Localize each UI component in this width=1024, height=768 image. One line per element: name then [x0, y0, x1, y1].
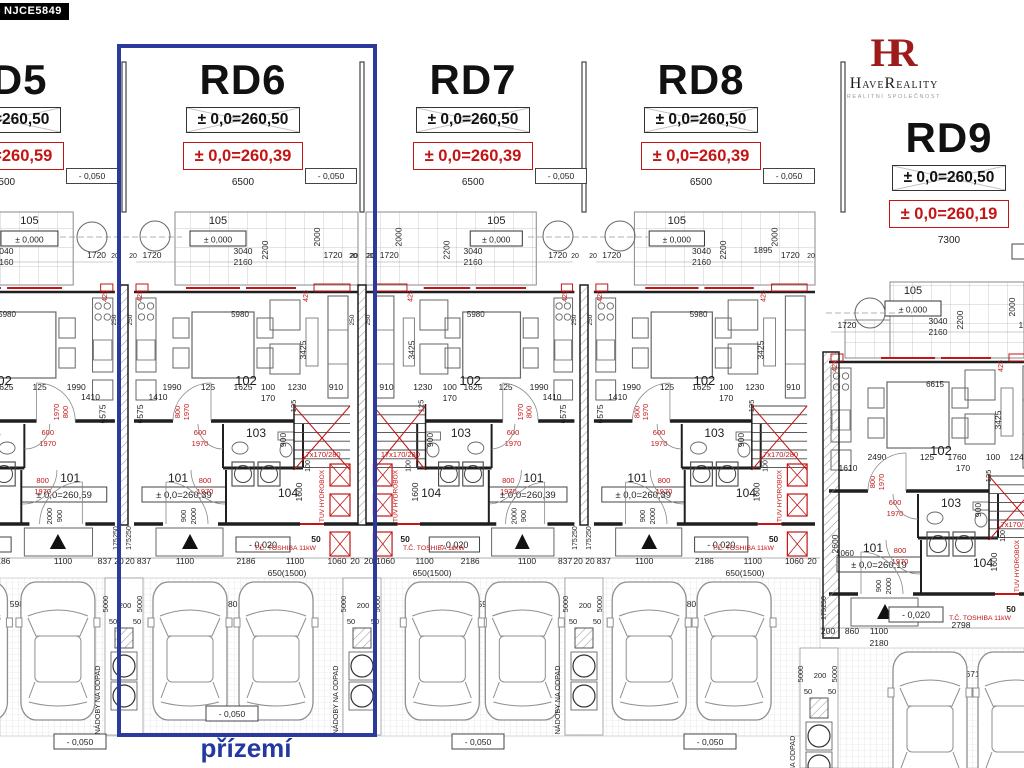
svg-text:5000: 5000 — [101, 596, 110, 613]
elevation-red-box: ± 0,0=260,39 — [641, 142, 761, 170]
svg-text:425: 425 — [562, 290, 569, 302]
svg-text:1970: 1970 — [641, 404, 650, 421]
svg-text:TUV HYDROBOX: TUV HYDROBOX — [776, 469, 783, 522]
svg-text:17x170/280: 17x170/280 — [381, 450, 420, 459]
svg-text:1410: 1410 — [543, 392, 562, 402]
svg-text:50: 50 — [569, 617, 577, 626]
svg-text:2200: 2200 — [955, 310, 965, 329]
svg-text:900: 900 — [874, 580, 883, 593]
svg-text:100: 100 — [986, 452, 1000, 462]
svg-text:50: 50 — [593, 617, 601, 626]
svg-text:200: 200 — [579, 601, 592, 610]
svg-text:105: 105 — [487, 215, 505, 227]
svg-text:1100: 1100 — [635, 556, 654, 566]
svg-text:± 0,000: ± 0,000 — [663, 235, 692, 245]
svg-text:1990: 1990 — [67, 382, 86, 392]
svg-text:600: 600 — [41, 428, 54, 437]
svg-text:100: 100 — [406, 460, 413, 472]
svg-text:2200: 2200 — [718, 240, 728, 259]
svg-text:101: 101 — [523, 471, 543, 485]
unit-header-rd8: RD8 ± 0,0=260,50 ± 0,0=260,39 6500 - 0,0… — [581, 58, 821, 188]
svg-text:6615: 6615 — [926, 380, 944, 389]
svg-text:1970: 1970 — [892, 557, 909, 566]
svg-text:20: 20 — [585, 556, 595, 566]
svg-text:101: 101 — [863, 541, 883, 555]
svg-text:2000: 2000 — [1007, 297, 1017, 316]
svg-text:175: 175 — [572, 538, 579, 550]
svg-text:1720: 1720 — [1019, 320, 1024, 330]
svg-text:3040: 3040 — [692, 246, 711, 256]
unit-title: RD9 — [829, 116, 1024, 160]
svg-text:650(1500): 650(1500) — [413, 568, 452, 578]
svg-text:900: 900 — [55, 510, 64, 523]
elevation-black-box: ± 0,0=260,50 — [416, 107, 530, 133]
svg-text:± 0,000: ± 0,000 — [15, 235, 44, 245]
svg-text:1760: 1760 — [948, 452, 967, 462]
level-box: - 0,050 — [535, 168, 587, 184]
svg-text:5000: 5000 — [561, 596, 570, 613]
svg-text:1100: 1100 — [518, 556, 537, 566]
svg-text:2186: 2186 — [461, 556, 480, 566]
logo-name: HAVEREALITY — [836, 75, 952, 93]
svg-text:50: 50 — [400, 534, 410, 544]
svg-text:T.Č. TOSHIBA 11kW: T.Č. TOSHIBA 11kW — [403, 543, 466, 552]
floor-label: přízemí — [146, 733, 346, 764]
svg-text:1970: 1970 — [505, 439, 522, 448]
unit-header-rd7: RD7 ± 0,0=260,50 ± 0,0=260,39 6500 - 0,0… — [353, 58, 593, 188]
svg-text:837: 837 — [558, 556, 572, 566]
svg-text:- 0,050: - 0,050 — [67, 737, 94, 747]
svg-text:170: 170 — [443, 393, 457, 403]
svg-text:103: 103 — [0, 426, 1, 440]
svg-text:170: 170 — [956, 463, 970, 473]
svg-text:100: 100 — [1000, 530, 1007, 542]
svg-text:50: 50 — [1006, 604, 1016, 614]
svg-text:T.Č. TOSHIBA 11kW: T.Č. TOSHIBA 11kW — [712, 543, 775, 552]
svg-text:1230: 1230 — [413, 382, 432, 392]
svg-text:3040: 3040 — [464, 246, 483, 256]
svg-text:20: 20 — [573, 556, 583, 566]
svg-text:1060: 1060 — [785, 556, 804, 566]
svg-text:800: 800 — [525, 406, 534, 419]
level-box: - 0,050 — [763, 168, 815, 184]
svg-text:2798: 2798 — [952, 620, 971, 630]
svg-text:2000: 2000 — [769, 227, 779, 246]
svg-text:3040: 3040 — [0, 246, 14, 256]
svg-text:1410: 1410 — [81, 392, 100, 402]
svg-text:837: 837 — [597, 556, 611, 566]
svg-text:100: 100 — [719, 382, 733, 392]
svg-text:650(1500): 650(1500) — [726, 568, 765, 578]
svg-text:200: 200 — [814, 671, 827, 680]
elevation-red-box: ± 0,0=260,39 — [413, 142, 533, 170]
svg-text:101: 101 — [627, 471, 647, 485]
svg-text:900: 900 — [519, 510, 528, 523]
svg-text:1100: 1100 — [744, 556, 763, 566]
svg-text:- 0,050: - 0,050 — [697, 737, 724, 747]
svg-text:NÁDOBY NA ODPAD: NÁDOBY NA ODPAD — [93, 666, 102, 735]
svg-text:1970: 1970 — [887, 509, 904, 518]
svg-text:5000: 5000 — [796, 666, 805, 683]
svg-text:3425: 3425 — [993, 410, 1003, 429]
svg-text:TUV HYDROBOX: TUV HYDROBOX — [393, 469, 400, 522]
svg-text:17x170/280: 17x170/280 — [996, 520, 1024, 529]
unit-title: RD5 — [0, 58, 124, 102]
logo-monogram-icon: HR — [836, 33, 952, 73]
svg-text:20: 20 — [571, 253, 579, 260]
svg-text:101: 101 — [60, 471, 80, 485]
drawing-id-badge: NJCE5849 — [0, 3, 69, 20]
svg-text:- 0,020: - 0,020 — [902, 610, 930, 620]
svg-text:5980: 5980 — [0, 310, 17, 319]
svg-text:900: 900 — [425, 433, 435, 447]
logo-tagline: REALITNÍ SPOLEČNOST — [836, 94, 952, 100]
svg-text:250: 250 — [587, 314, 594, 325]
svg-text:103: 103 — [704, 426, 724, 440]
svg-text:425: 425 — [408, 290, 415, 302]
svg-text:5980: 5980 — [467, 310, 485, 319]
svg-text:100: 100 — [763, 460, 770, 472]
svg-text:2200: 2200 — [442, 240, 452, 259]
svg-text:425: 425 — [998, 360, 1005, 372]
svg-text:2186: 2186 — [695, 556, 714, 566]
svg-text:2000: 2000 — [393, 227, 403, 246]
svg-text:1895: 1895 — [754, 245, 773, 255]
svg-text:5980: 5980 — [690, 310, 708, 319]
svg-text:50: 50 — [769, 534, 779, 544]
elevation-red-box: ± 0,0=260,19 — [889, 200, 1009, 228]
svg-text:1240: 1240 — [1010, 452, 1024, 462]
svg-text:2000: 2000 — [45, 508, 54, 525]
svg-text:1610: 1610 — [839, 463, 858, 473]
unit-header-rd9: RD9 ± 0,0=260,50 ± 0,0=260,19 7300 — [829, 116, 1024, 246]
svg-text:2000: 2000 — [510, 508, 519, 525]
floorplan-page: 105± 0,000172030402160172020220020004254… — [0, 0, 1024, 768]
svg-text:1625: 1625 — [0, 382, 14, 392]
svg-text:1100: 1100 — [870, 626, 889, 636]
svg-text:2186: 2186 — [0, 556, 11, 566]
svg-text:50: 50 — [804, 687, 812, 696]
unit-title: RD8 — [581, 58, 821, 102]
svg-text:175: 175 — [586, 538, 593, 550]
svg-text:105: 105 — [20, 215, 38, 227]
svg-text:NÁDOBA NA ODPAD: NÁDOBA NA ODPAD — [788, 736, 797, 768]
svg-text:1720: 1720 — [380, 250, 399, 260]
elevation-black-box: ± 0,0=260,50 — [644, 107, 758, 133]
svg-text:2180: 2180 — [870, 638, 889, 648]
svg-text:800: 800 — [894, 546, 907, 555]
svg-text:1230: 1230 — [745, 382, 764, 392]
svg-text:2000: 2000 — [648, 508, 657, 525]
svg-text:900: 900 — [736, 433, 746, 447]
svg-text:1600: 1600 — [752, 482, 762, 501]
svg-text:250: 250 — [586, 526, 593, 538]
svg-text:1720: 1720 — [781, 250, 800, 260]
svg-text:3040: 3040 — [929, 316, 948, 326]
svg-text:425: 425 — [597, 290, 604, 302]
svg-text:20: 20 — [807, 556, 817, 566]
svg-text:1600: 1600 — [410, 482, 420, 501]
svg-text:105: 105 — [904, 285, 922, 297]
elevation-black-box: ± 0,0=260,50 — [892, 165, 1006, 191]
svg-text:105: 105 — [668, 215, 686, 227]
rd6-highlight-frame — [117, 44, 377, 737]
svg-text:1625: 1625 — [464, 382, 483, 392]
svg-text:250: 250 — [571, 314, 578, 325]
svg-text:1410: 1410 — [608, 392, 627, 402]
svg-text:104: 104 — [421, 486, 441, 500]
svg-text:NÁDOBY NA ODPAD: NÁDOBY NA ODPAD — [553, 666, 562, 735]
svg-text:1720: 1720 — [548, 250, 567, 260]
svg-text:800: 800 — [36, 476, 49, 485]
svg-text:5000: 5000 — [830, 666, 839, 683]
svg-text:50: 50 — [828, 687, 836, 696]
svg-text:250: 250 — [572, 526, 579, 538]
svg-text:2000: 2000 — [884, 578, 893, 595]
svg-text:100: 100 — [443, 382, 457, 392]
svg-text:1990: 1990 — [530, 382, 549, 392]
svg-text:425: 425 — [102, 290, 109, 302]
svg-text:1970: 1970 — [516, 404, 525, 421]
svg-text:1625: 1625 — [692, 382, 711, 392]
svg-text:910: 910 — [379, 382, 393, 392]
svg-text:600: 600 — [653, 428, 666, 437]
svg-text:600: 600 — [889, 498, 902, 507]
svg-text:± 0,000: ± 0,000 — [482, 235, 511, 245]
svg-text:900: 900 — [638, 510, 647, 523]
svg-text:800: 800 — [502, 476, 515, 485]
svg-text:800: 800 — [61, 406, 70, 419]
svg-text:1990: 1990 — [622, 382, 641, 392]
svg-text:- 0,050: - 0,050 — [465, 737, 492, 747]
svg-text:1970: 1970 — [34, 487, 51, 496]
unit-header-rd5: RD5 ± 0,0=260,50 ± 0,0=260,59 6500 - 0,0… — [0, 58, 124, 188]
svg-text:1100: 1100 — [54, 556, 73, 566]
svg-text:20: 20 — [807, 253, 815, 260]
svg-text:837: 837 — [98, 556, 112, 566]
elevation-red-box: ± 0,0=260,59 — [0, 142, 64, 170]
svg-text:800: 800 — [658, 476, 671, 485]
svg-text:170: 170 — [719, 393, 733, 403]
width-dim: 7300 — [829, 235, 1024, 246]
havereality-logo: HR HAVEREALITY REALITNÍ SPOLEČNOST — [836, 33, 952, 100]
svg-text:600: 600 — [507, 428, 520, 437]
svg-text:TUV HYDROBOX: TUV HYDROBOX — [1014, 539, 1021, 592]
svg-text:860: 860 — [845, 626, 859, 636]
svg-text:1970: 1970 — [39, 439, 56, 448]
svg-text:1720: 1720 — [602, 250, 621, 260]
svg-text:20: 20 — [589, 253, 597, 260]
svg-text:425: 425 — [761, 290, 768, 302]
svg-text:17x170/280: 17x170/280 — [759, 450, 798, 459]
svg-text:900: 900 — [973, 503, 983, 517]
svg-text:1060: 1060 — [376, 556, 395, 566]
svg-text:103: 103 — [941, 496, 961, 510]
svg-text:± 0,000: ± 0,000 — [899, 305, 928, 315]
svg-text:5000: 5000 — [595, 596, 604, 613]
level-box: - 0,050 — [66, 168, 118, 184]
svg-text:3425: 3425 — [756, 340, 766, 359]
svg-text:1100: 1100 — [415, 556, 434, 566]
svg-text:910: 910 — [786, 382, 800, 392]
elevation-black-box: ± 0,0=260,50 — [0, 107, 61, 133]
svg-text:1970: 1970 — [877, 474, 886, 491]
svg-text:103: 103 — [451, 426, 471, 440]
svg-text:50: 50 — [109, 617, 117, 626]
svg-text:1600: 1600 — [989, 552, 999, 571]
svg-text:1970: 1970 — [651, 439, 668, 448]
svg-text:1970: 1970 — [52, 404, 61, 421]
unit-title: RD7 — [353, 58, 593, 102]
svg-text:125: 125 — [920, 452, 934, 462]
svg-text:3425: 3425 — [406, 340, 416, 359]
svg-text:1720: 1720 — [838, 320, 857, 330]
